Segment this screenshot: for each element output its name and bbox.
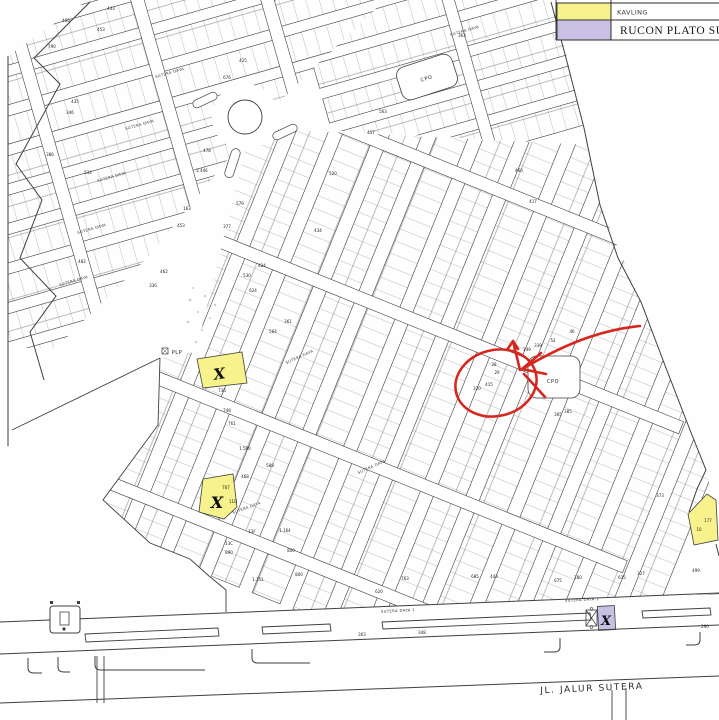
plot-number: 435 (71, 99, 79, 104)
plot-number: 620 (375, 589, 383, 594)
plot-number: 482 (78, 259, 86, 264)
plot-number: 46 (569, 329, 575, 334)
plot-number: 1.164 (279, 528, 291, 533)
plot-number: 534 (84, 170, 92, 175)
plot-number: 615 (618, 575, 626, 580)
plot-number: 363 (358, 632, 366, 637)
plot-number: 2.446 (196, 168, 208, 173)
plot-number: 327 (637, 571, 645, 576)
boundary-wedge (12, 358, 160, 430)
plot-number: 685 (471, 574, 479, 579)
plot-number: 424 (258, 263, 266, 268)
facility-label: CPO (547, 379, 559, 385)
road-branch-left (97, 656, 104, 703)
plot-number: 790 (48, 44, 56, 49)
legend-label-kavling: KAVLING (617, 9, 648, 17)
plot-number: 163 (183, 206, 191, 211)
plot-number: 434 (314, 228, 322, 233)
plot-number: 13C (225, 541, 233, 546)
street-label: SUTERA DAYA 1 (381, 607, 416, 614)
plot-number: 460 (515, 168, 523, 173)
plot-number: 763 (401, 576, 409, 581)
plot-number: 453 (177, 223, 185, 228)
plot-number: 761 (228, 421, 236, 426)
plot-number: 386 (46, 152, 54, 157)
plot-number: 290 (701, 624, 709, 629)
plot-number: 453 (97, 27, 105, 32)
plot-number: 563 (379, 109, 387, 114)
road-medians (85, 608, 711, 642)
plot-number: 457 (367, 130, 375, 135)
plot-number: 280 (574, 575, 582, 580)
plot-number: 800 (287, 548, 295, 553)
kavling-map-page: JL. JALUR SUTERA 40544345379042567643534… (0, 0, 719, 720)
plot-number: 579 (236, 201, 244, 206)
map-canvas: JL. JALUR SUTERA 40544345379042567643534… (0, 0, 719, 720)
plot-number: 443 (107, 6, 115, 11)
plot-number: 767 (222, 485, 230, 490)
plot-number: 377 (223, 224, 231, 229)
plot-number: 13F (248, 529, 256, 534)
utility-box-icon (586, 608, 597, 629)
plot-number: 520 (329, 171, 337, 176)
plot-number: 348 (418, 630, 426, 635)
plot-number: 478 (203, 148, 211, 153)
plot-number: 468 (241, 474, 249, 479)
plot-number: 425 (239, 58, 247, 63)
plot-number: 385 (564, 409, 572, 414)
legend-swatch-kavling (557, 3, 611, 20)
plot-number: 10 (696, 527, 702, 532)
plot-number: 417 (529, 199, 537, 204)
plot-number: 530 (243, 273, 251, 278)
street-label: SUTERA DAYA 1 (565, 596, 600, 603)
plot-number: 11D (229, 499, 237, 504)
plot-number: 373 (656, 493, 664, 498)
legend-label-rucon: RUCON PLATO SUDUT (620, 25, 719, 37)
plot-number: 564 (269, 329, 277, 334)
plot-number: 675 (554, 578, 562, 583)
plot-number: 800 (295, 572, 303, 577)
legend: KAVLING RUCON PLATO SUDUT (556, 0, 719, 40)
plot-number: 361 (284, 319, 292, 324)
plot-number: 346 (66, 110, 74, 115)
plot-number: 52 (550, 338, 556, 343)
plot-number: 624 (249, 288, 257, 293)
plot-number: 588 (266, 463, 274, 468)
plot-number: 1.590 (239, 446, 251, 451)
plot-number: 890 (225, 550, 233, 555)
plot-number: 1.151 (252, 577, 264, 582)
plot-number: 462 (160, 269, 168, 274)
plot-number: 736 (218, 388, 226, 393)
legend-swatch-rucon (557, 20, 611, 40)
plot-number: 339 (534, 343, 542, 348)
main-road-label: JL. JALUR SUTERA (539, 682, 644, 697)
plot-number: 443 (490, 574, 498, 579)
plot-number: 748 (223, 408, 231, 413)
plot-number: 405 (62, 18, 70, 23)
plp-icon (162, 348, 168, 354)
plot-number: 676 (223, 75, 231, 80)
plot-number: 499 (692, 568, 700, 573)
x-mark: X (600, 614, 612, 629)
plot-number: 415 (485, 382, 493, 387)
x-mark: X (210, 493, 224, 512)
plot-number: 336 (149, 283, 157, 288)
plot-number: 29 (494, 370, 500, 375)
plot-number: 320 (473, 386, 481, 391)
facility-label: PLP (172, 350, 183, 356)
guardhouse (50, 601, 80, 633)
road-curbs (28, 632, 700, 673)
plot-number: 249 (523, 347, 531, 352)
plot-number: 177 (704, 518, 712, 523)
plot-number: 28 (491, 362, 497, 367)
plot-number: 365 (554, 412, 562, 417)
